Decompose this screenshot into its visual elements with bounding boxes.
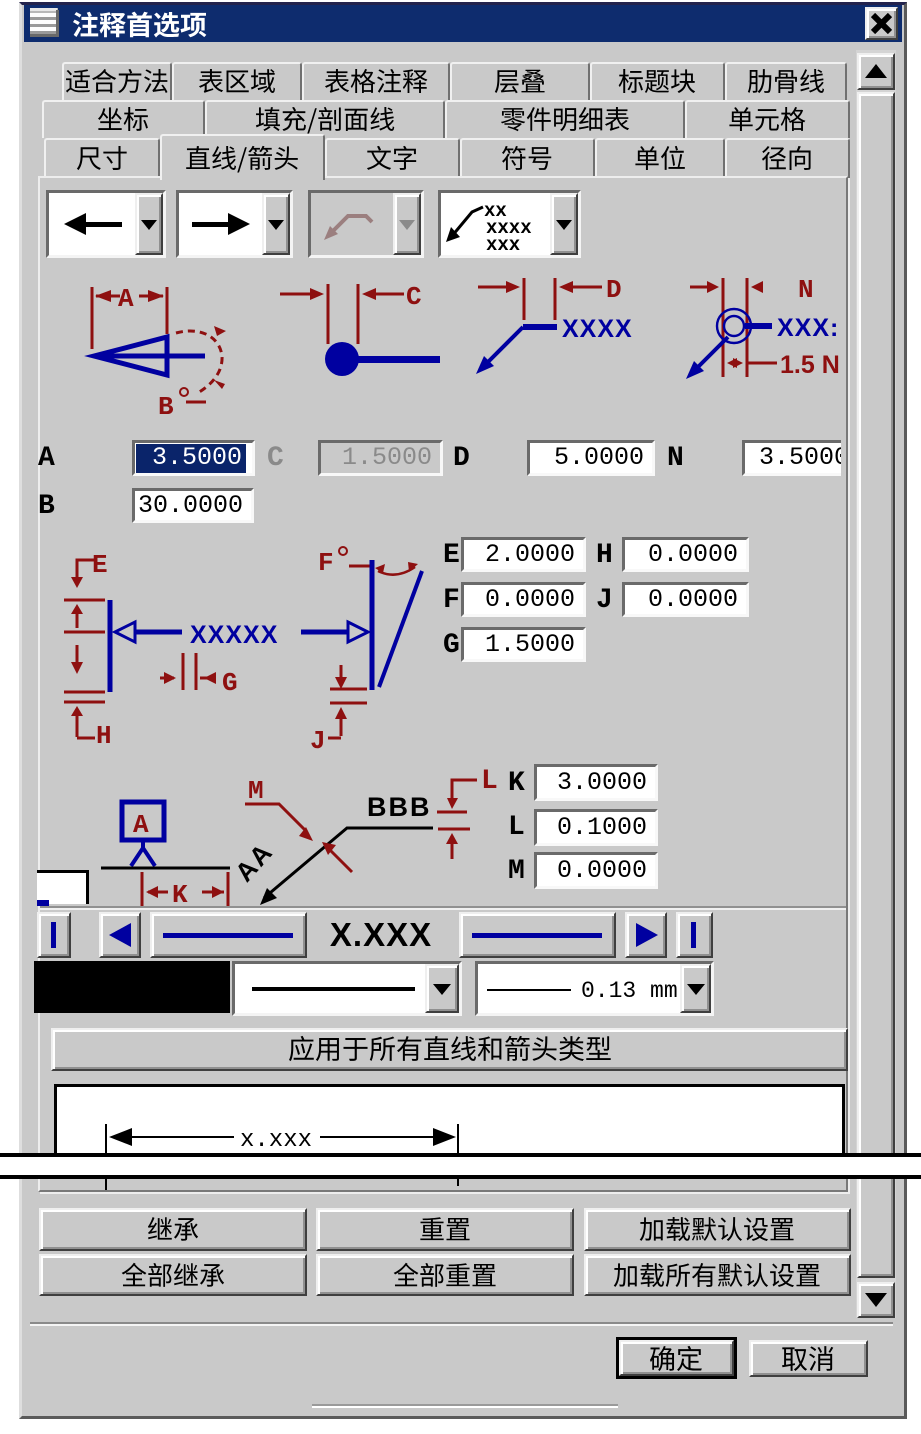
- svg-text:A: A: [133, 810, 149, 840]
- svg-text:C: C: [406, 282, 422, 312]
- svg-text:A: A: [118, 284, 134, 314]
- svg-text:BBB: BBB: [367, 792, 432, 822]
- svg-text:XXXXX: XXXXX: [190, 621, 278, 649]
- svg-text:AA: AA: [229, 836, 279, 887]
- svg-text:XXXX: XXXX: [562, 315, 633, 343]
- svg-text:D: D: [606, 275, 622, 305]
- svg-text:F: F: [318, 548, 334, 578]
- svg-text:J: J: [310, 726, 326, 756]
- svg-text:N: N: [798, 275, 814, 305]
- svg-text:G: G: [222, 668, 238, 698]
- svg-text:B: B: [158, 392, 174, 422]
- svg-text:E: E: [92, 550, 108, 580]
- svg-text:1.5 N: 1.5 N: [780, 351, 840, 379]
- svg-text:H: H: [96, 721, 112, 751]
- svg-text:x.xxx: x.xxx: [240, 1127, 312, 1154]
- svg-text:M: M: [248, 776, 264, 806]
- svg-text:XXX:: XXX:: [777, 314, 839, 342]
